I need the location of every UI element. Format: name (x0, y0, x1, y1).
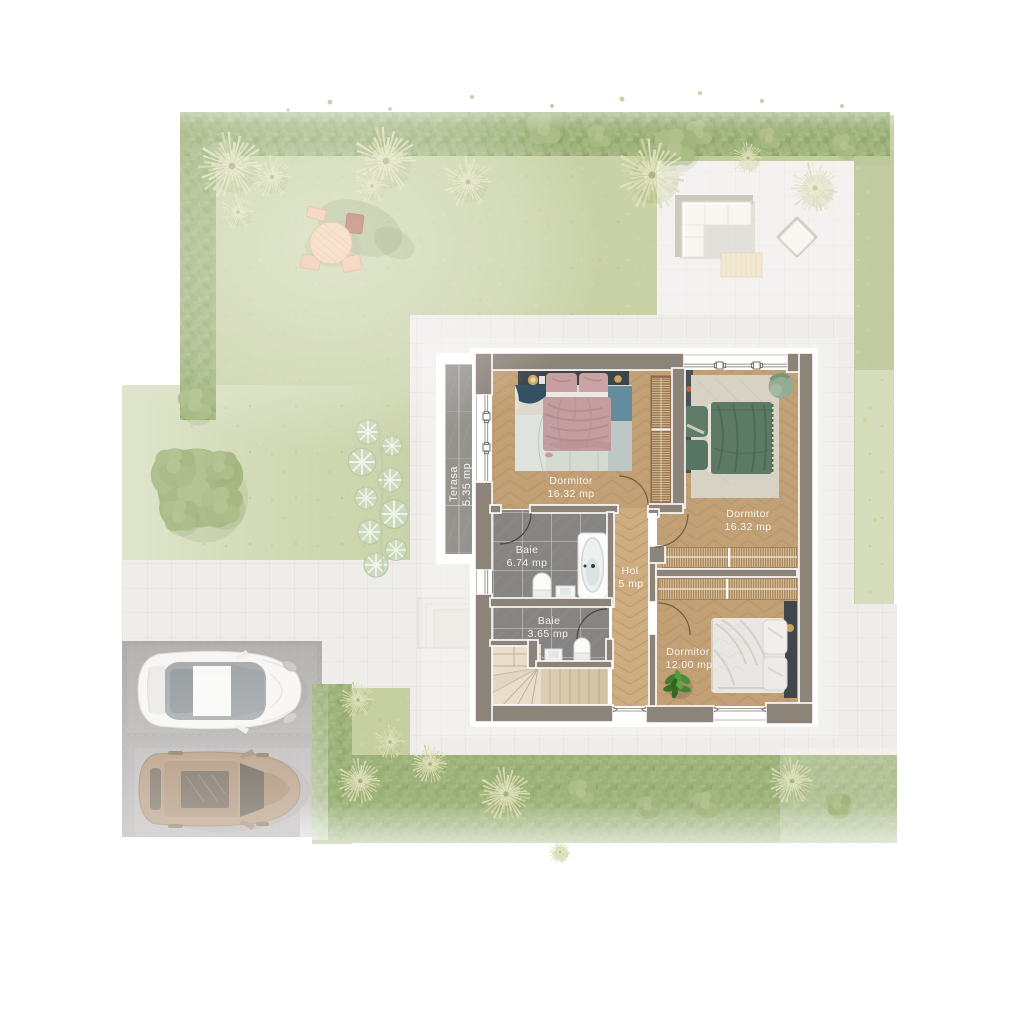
svg-text:Dormitor: Dormitor (726, 508, 770, 520)
svg-text:3.65 mp: 3.65 mp (528, 628, 569, 640)
svg-text:16.32 mp: 16.32 mp (725, 521, 772, 533)
svg-text:Hol: Hol (622, 565, 639, 577)
svg-text:5 mp: 5 mp (619, 578, 644, 590)
svg-text:16.32 mp: 16.32 mp (548, 488, 595, 500)
svg-text:5.35 mp: 5.35 mp (461, 463, 473, 506)
svg-text:12.00 mp: 12.00 mp (666, 659, 713, 671)
svg-text:6.74 mp: 6.74 mp (507, 557, 548, 569)
svg-text:Terasa: Terasa (448, 466, 460, 502)
svg-text:Baie: Baie (538, 615, 561, 627)
svg-text:Dormitor: Dormitor (666, 646, 710, 658)
svg-text:Dormitor: Dormitor (549, 475, 593, 487)
svg-text:Baie: Baie (516, 544, 539, 556)
